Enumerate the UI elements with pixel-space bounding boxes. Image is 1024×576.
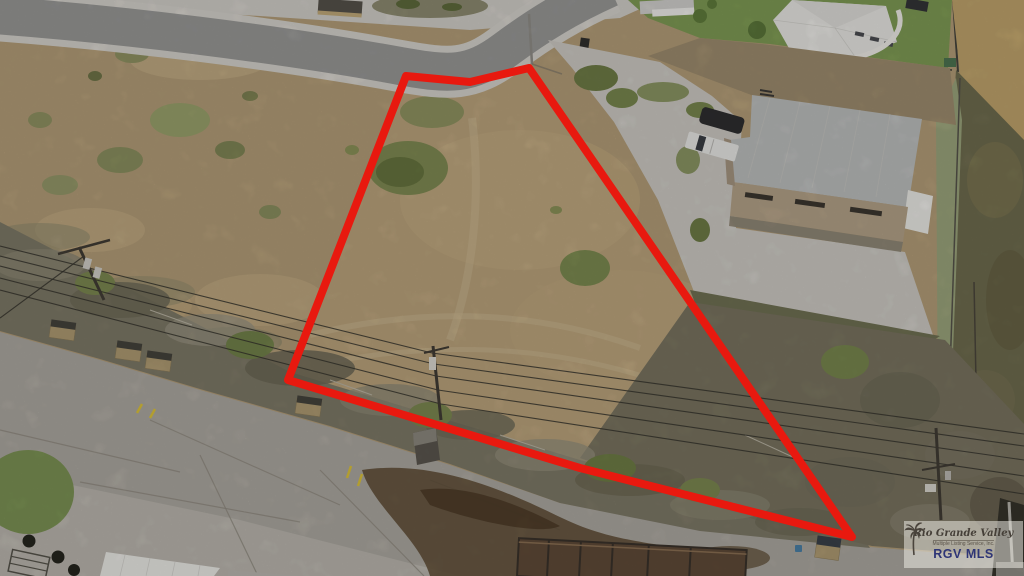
aerial-scene xyxy=(0,0,1024,576)
mls-watermark: Rio Grande Valley Multiple Listing Servi… xyxy=(904,521,1023,568)
fine-grain xyxy=(0,0,1024,576)
watermark-org: RGV MLS xyxy=(933,548,993,561)
palm-tree-icon xyxy=(904,521,924,557)
watermark-title: Rio Grande Valley xyxy=(914,529,1014,539)
aerial-photo: Rio Grande Valley Multiple Listing Servi… xyxy=(0,0,1024,576)
watermark-subtitle: Multiple Listing Service, Inc. xyxy=(933,540,995,547)
